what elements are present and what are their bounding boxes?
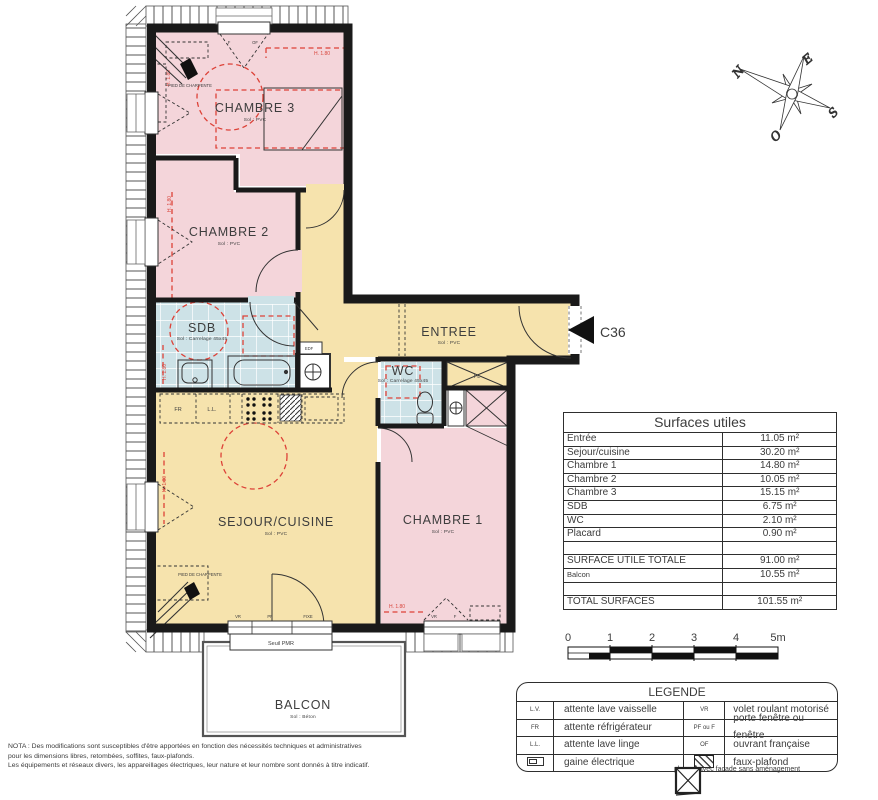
legend-key: OF	[684, 737, 725, 754]
legend-key: VR	[684, 702, 725, 719]
scale-tick: 4	[733, 632, 739, 644]
table-row-blank	[564, 583, 836, 597]
row-value: 2.10 m²	[723, 515, 836, 528]
legend-label: attente lave linge	[554, 737, 684, 754]
table-row: Chambre 114.80 m²	[564, 460, 836, 474]
room-floor-entree: Sol : PVC	[438, 340, 461, 346]
scale-bar: 0 1 2 3 4 5m	[565, 632, 786, 661]
room-floor-balcon: Sol : Béton	[290, 714, 316, 720]
table-row: Chambre 210.05 m²	[564, 474, 836, 488]
floor-plan-sheet: H. 1.80 H. 1.80 H. 1.80 H. 1.80 H. 1.80 …	[0, 0, 878, 800]
pied-de-charpente-label: PIED DE CHARPENTE	[178, 572, 222, 577]
door-label-vr: VR	[235, 614, 241, 619]
row-value: 0.90 m²	[723, 528, 836, 541]
height-label: H. 1.80	[167, 196, 173, 212]
window-label-of: OF	[252, 40, 258, 45]
room-floor-sdb: Sol : Carrelage 45x45	[177, 336, 228, 342]
height-label: H. 1.80	[162, 476, 168, 492]
row-value: 30.20 m²	[723, 447, 836, 460]
legend-key: FR	[517, 720, 554, 737]
legend-extra: placard avec facade sans aménagement	[674, 766, 800, 773]
table-row: Sejour/cuisine30.20 m²	[564, 447, 836, 461]
room-label-chambre2: CHAMBRE 2	[189, 225, 269, 239]
scale-tick: 5m	[770, 632, 785, 644]
room-floor-sejour: Sol : PVC	[265, 531, 288, 537]
legend: LEGENDE L.V. attente lave vaisselle VR v…	[516, 682, 838, 772]
room-floor-chambre3: Sol : PVC	[244, 117, 267, 123]
row-label: WC	[564, 515, 723, 528]
row-value: 15.15 m²	[723, 487, 836, 500]
row-value: 91.00 m²	[723, 555, 836, 568]
row-label: Chambre 2	[564, 474, 723, 487]
row-label: SDB	[564, 501, 723, 514]
row-label: Chambre 1	[564, 460, 723, 473]
legend-key: L.V.	[517, 702, 554, 719]
row-label: TOTAL SURFACES	[564, 596, 723, 609]
table-row: Chambre 315.15 m²	[564, 487, 836, 501]
room-label-entree: ENTREE	[421, 325, 477, 339]
compass-n: N	[729, 63, 747, 81]
table-row: WC2.10 m²	[564, 515, 836, 529]
height-label: H. 1.80	[314, 51, 330, 57]
floor-plan-drawing: H. 1.80 H. 1.80 H. 1.80 H. 1.80 H. 1.80 …	[0, 0, 878, 800]
row-label	[564, 542, 723, 555]
table-row: SDB6.75 m²	[564, 501, 836, 515]
legend-key: PF ou F	[684, 720, 725, 737]
row-value: 14.80 m²	[723, 460, 836, 473]
legend-title: LEGENDE	[517, 683, 837, 702]
pl-label: PL	[474, 374, 481, 380]
table-row-total: SURFACE UTILE TOTALE91.00 m²	[564, 555, 836, 569]
compass-rose: N E S O	[729, 51, 841, 145]
window-label-f: F	[454, 614, 457, 619]
legend-row: L.L. attente lave linge OF ouvrant franç…	[517, 737, 837, 755]
height-label: H. 1.80	[389, 604, 405, 610]
legend-key: L.L.	[517, 737, 554, 754]
row-label: Entrée	[564, 433, 723, 446]
legend-label: gaine électrique	[554, 755, 684, 772]
window-label-f: F	[228, 40, 231, 45]
row-value: 6.75 m²	[723, 501, 836, 514]
room-label-chambre1: CHAMBRE 1	[403, 513, 483, 527]
room-label-wc: WC	[392, 364, 414, 378]
room-label-balcon: BALCON	[275, 698, 331, 712]
fr-label: FR	[174, 407, 181, 413]
window-label-vr: VR	[431, 614, 437, 619]
room-floor-chambre2: Sol : PVC	[218, 241, 241, 247]
table-row: Balcon10.55 m²	[564, 569, 836, 583]
pied-de-charpente-label: PIED DE CHARPENTE	[168, 83, 212, 88]
room-floor-wc: Sol : Carrelage 45x45	[378, 378, 429, 384]
compass-s: S	[826, 105, 842, 121]
row-value	[723, 542, 836, 555]
door-label-fixe: FIXE	[303, 614, 313, 619]
scale-tick: 0	[565, 632, 571, 644]
room-label-chambre3: CHAMBRE 3	[215, 101, 295, 115]
door-label-pf: PF	[267, 614, 273, 619]
nota-line: NOTA : Des modifications sont susceptibl…	[8, 742, 454, 752]
room-label-sejour: SEJOUR/CUISINE	[218, 515, 334, 529]
row-label	[564, 583, 723, 596]
nota-line: pour les dimensions libres, retombées, s…	[8, 752, 454, 762]
ll-label: L.L.	[207, 407, 217, 413]
row-label: Sejour/cuisine	[564, 447, 723, 460]
edf-label: EDF	[305, 346, 314, 351]
unit-label: C36	[600, 324, 626, 340]
table-row-blank	[564, 542, 836, 556]
legend-label: ouvrant française	[725, 737, 837, 754]
row-label: Chambre 3	[564, 487, 723, 500]
scale-tick: 2	[649, 632, 655, 644]
height-label: H. 1.80	[162, 364, 168, 380]
table-row-grand-total: TOTAL SURFACES101.55 m²	[564, 596, 836, 609]
legend-row: FR attente réfrigérateur PF ou F porte f…	[517, 720, 837, 738]
legend-label: attente réfrigérateur	[554, 720, 684, 737]
placard-icon	[674, 766, 702, 796]
room-floor-chambre1: Sol : PVC	[432, 529, 455, 535]
gaine-electrique-icon	[517, 755, 554, 772]
row-label: Balcon	[564, 569, 723, 582]
table-row: Placard0.90 m²	[564, 528, 836, 542]
scale-tick: 3	[691, 632, 697, 644]
row-label: Placard	[564, 528, 723, 541]
legend-label: attente lave vaisselle	[554, 702, 684, 719]
row-label: SURFACE UTILE TOTALE	[564, 555, 723, 568]
row-value: 11.05 m²	[723, 433, 836, 446]
surfaces-table-title: Surfaces utiles	[564, 413, 836, 433]
seuil-pmr-label: Seuil PMR	[268, 641, 294, 647]
balcony: Seuil PMR	[203, 634, 405, 736]
row-value: 10.05 m²	[723, 474, 836, 487]
row-value	[723, 583, 836, 596]
compass-o: O	[768, 128, 785, 145]
nota-text: NOTA : Des modifications sont susceptibl…	[8, 742, 454, 771]
surfaces-table: Surfaces utiles Entrée11.05 m² Sejour/cu…	[563, 412, 837, 610]
table-row: Entrée11.05 m²	[564, 433, 836, 447]
room-label-sdb: SDB	[188, 321, 216, 335]
row-value: 101.55 m²	[723, 596, 836, 609]
scale-tick: 1	[607, 632, 613, 644]
row-value: 10.55 m²	[723, 569, 836, 582]
nota-line: Les équipements et réseaux divers, les a…	[8, 761, 454, 771]
